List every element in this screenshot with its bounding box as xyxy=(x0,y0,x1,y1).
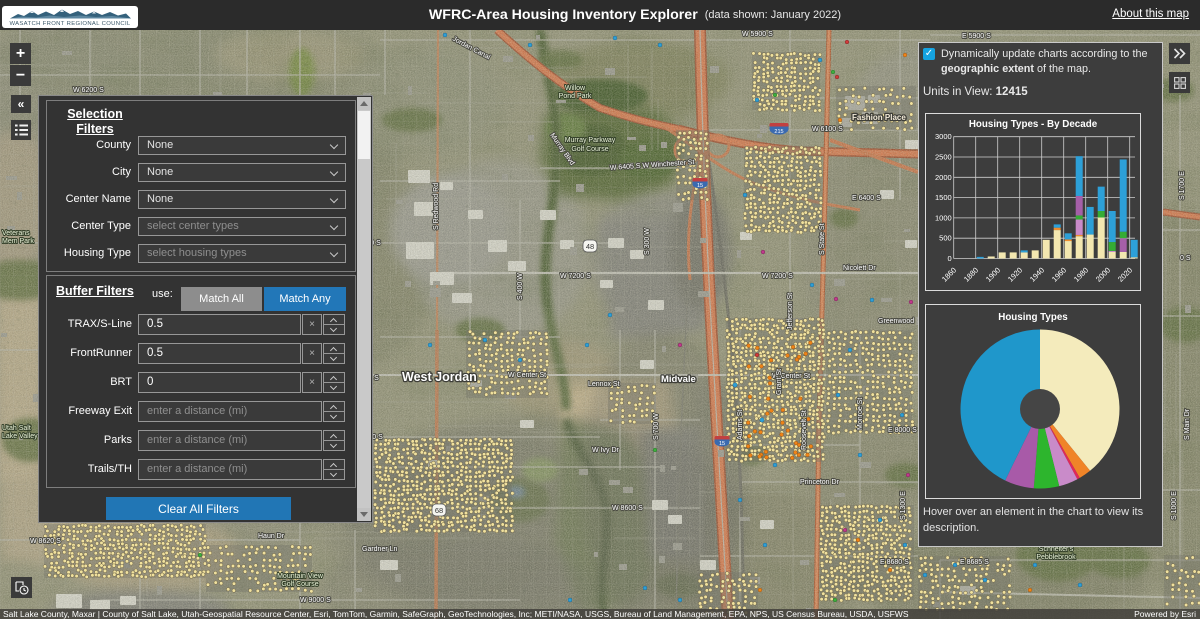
svg-text:Pebblebrook: Pebblebrook xyxy=(1036,554,1076,561)
svg-text:Schneiter's: Schneiter's xyxy=(1039,546,1074,553)
svg-text:S 1000 E: S 1000 E xyxy=(1171,491,1178,520)
svg-text:Mem Park: Mem Park xyxy=(2,238,34,245)
svg-text:15: 15 xyxy=(697,183,703,189)
svg-text:2000: 2000 xyxy=(935,173,952,182)
svg-text:Mountain View: Mountain View xyxy=(277,573,324,580)
svg-text:Fashion Place: Fashion Place xyxy=(852,113,906,122)
svg-text:E 5900 S: E 5900 S xyxy=(962,33,991,40)
svg-text:215: 215 xyxy=(774,129,783,135)
svg-text:WASATCH FRONT REGIONAL COUNCIL: WASATCH FRONT REGIONAL COUNCIL xyxy=(9,21,130,27)
svg-text:Monroe St: Monroe St xyxy=(857,398,864,430)
svg-text:S 1300 E: S 1300 E xyxy=(900,491,907,520)
svg-text:E 8680 S: E 8680 S xyxy=(880,559,909,566)
svg-text:S 1700 E: S 1700 E xyxy=(1179,171,1186,200)
svg-text:Lennox St: Lennox St xyxy=(588,381,620,388)
svg-text:68: 68 xyxy=(435,506,443,515)
svg-text:1860: 1860 xyxy=(940,266,958,284)
svg-text:2020: 2020 xyxy=(1116,266,1134,284)
svg-text:48: 48 xyxy=(586,242,594,251)
svg-text:West Jordan: West Jordan xyxy=(402,370,477,384)
svg-text:Veterans: Veterans xyxy=(2,230,30,237)
svg-text:1880: 1880 xyxy=(962,266,980,284)
svg-text:S Main Dr: S Main Dr xyxy=(1184,408,1191,440)
svg-text:1920: 1920 xyxy=(1006,266,1024,284)
svg-text:Housing Types - By Decade: Housing Types - By Decade xyxy=(969,119,1098,130)
svg-text:S 300 W: S 300 W xyxy=(644,228,651,255)
svg-text:1980: 1980 xyxy=(1072,266,1090,284)
svg-text:Grant St: Grant St xyxy=(776,369,783,395)
svg-text:Lake Valley: Lake Valley xyxy=(2,433,38,440)
svg-text:Utah Salt: Utah Salt xyxy=(2,425,31,432)
svg-text:1000: 1000 xyxy=(935,213,952,222)
svg-text:0 S: 0 S xyxy=(1180,255,1191,262)
svg-text:S 700 W: S 700 W xyxy=(653,413,660,440)
svg-text:W 7200 S: W 7200 S xyxy=(560,273,591,280)
svg-text:2000: 2000 xyxy=(1094,266,1112,284)
svg-text:Nicolett Dr: Nicolett Dr xyxy=(843,265,876,272)
svg-text:1500: 1500 xyxy=(935,193,952,202)
svg-text:1940: 1940 xyxy=(1028,266,1046,284)
svg-text:S 400 W: S 400 W xyxy=(517,273,524,300)
svg-text:Haun Dr: Haun Dr xyxy=(258,533,285,540)
svg-text:Golf Course: Golf Course xyxy=(571,146,608,153)
svg-text:W 7200 S: W 7200 S xyxy=(762,273,793,280)
svg-text:Murray Parkway: Murray Parkway xyxy=(565,137,616,144)
svg-text:S Redwood Rd: S Redwood Rd xyxy=(433,183,440,230)
svg-text:Willow: Willow xyxy=(565,85,586,92)
svg-text:Adams St: Adams St xyxy=(737,410,744,440)
svg-text:15: 15 xyxy=(719,441,725,447)
svg-text:1900: 1900 xyxy=(984,266,1002,284)
svg-text:W 6100 S: W 6100 S xyxy=(812,126,843,133)
svg-text:2500: 2500 xyxy=(935,153,952,162)
svg-text:E 8000 S: E 8000 S xyxy=(888,427,917,434)
svg-text:500: 500 xyxy=(939,234,952,243)
svg-text:Roosevelt St: Roosevelt St xyxy=(801,410,808,450)
svg-text:S State St: S State St xyxy=(819,223,826,255)
svg-text:W Center St: W Center St xyxy=(508,372,546,379)
svg-text:W 8620 S: W 8620 S xyxy=(30,538,61,545)
svg-text:Princeton Dr: Princeton Dr xyxy=(800,479,840,486)
svg-text:0: 0 xyxy=(948,254,952,263)
svg-text:Housing Types: Housing Types xyxy=(998,312,1068,323)
svg-text:Golf Course: Golf Course xyxy=(281,581,318,588)
svg-text:W 9000 S: W 9000 S xyxy=(300,597,331,604)
svg-text:E 8685 S: E 8685 S xyxy=(960,559,989,566)
svg-text:1960: 1960 xyxy=(1050,266,1068,284)
svg-text:E 6400 S: E 6400 S xyxy=(852,195,881,202)
svg-text:Pond Park: Pond Park xyxy=(559,93,592,100)
svg-text:W 8600 S: W 8600 S xyxy=(612,505,643,512)
svg-text:W Ivy Dr: W Ivy Dr xyxy=(592,447,619,454)
svg-text:Jefferson St: Jefferson St xyxy=(787,293,794,330)
svg-text:Midvale: Midvale xyxy=(661,374,696,385)
svg-text:W 5900 S: W 5900 S xyxy=(742,31,773,38)
svg-text:W 6200 S: W 6200 S xyxy=(73,87,104,94)
svg-text:3000: 3000 xyxy=(935,132,952,141)
svg-text:Greenwood: Greenwood xyxy=(878,318,914,325)
svg-text:Gardner Ln: Gardner Ln xyxy=(362,546,398,553)
